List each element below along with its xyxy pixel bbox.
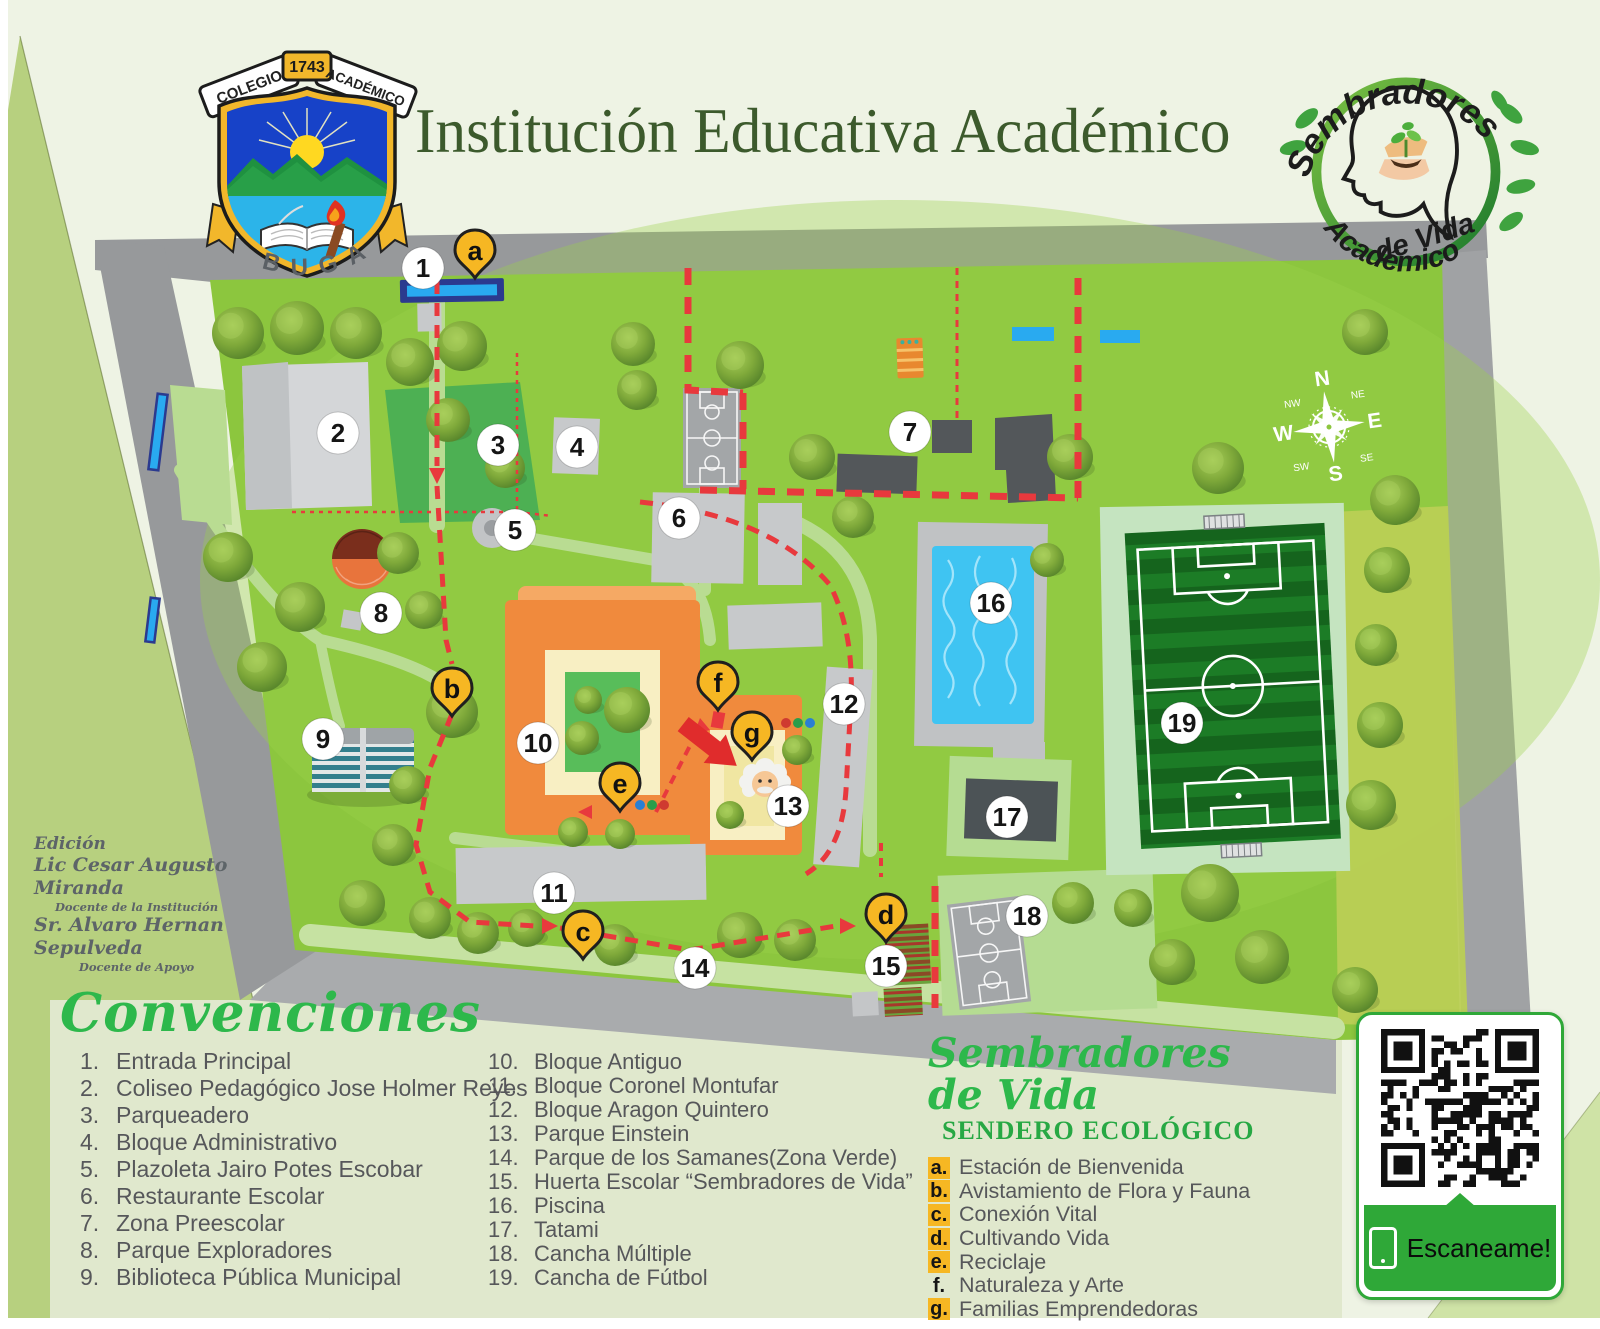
legend-label: Tatami (534, 1218, 599, 1242)
svg-text:17: 17 (993, 802, 1022, 832)
svg-text:15: 15 (872, 951, 901, 981)
sendero-title: Sembradores de Vida (928, 1032, 1268, 1116)
sendero-item-a: a.Estación de Bienvenida (928, 1156, 1268, 1180)
qr-code (1381, 1029, 1539, 1187)
svg-text:4: 4 (570, 432, 585, 462)
legend-item-5: 14.Parque de los Samanes(Zona Verde) (488, 1146, 913, 1170)
school-crest: COLEGIO ACADÉMICO 1743 (183, 24, 431, 290)
sendero-letter: c. (928, 1204, 950, 1226)
seal-hands-plant (1379, 121, 1430, 180)
compass-N: N (1313, 367, 1331, 392)
legend-number: 4. (80, 1129, 116, 1156)
sendero-label: Cultivando Vida (959, 1226, 1109, 1251)
legend-number: 14. (488, 1146, 534, 1170)
map-marker-12: 12 (823, 683, 865, 725)
legend-item-2: 2.Coliseo Pedagógico Jose Holmer Reyes (80, 1075, 528, 1102)
svg-text:6: 6 (672, 503, 686, 533)
map-marker-8: 8 (360, 592, 402, 634)
legend-item-5: 5.Plazoleta Jairo Potes Escobar (80, 1156, 528, 1183)
map-marker-10: 10 (517, 722, 559, 764)
svg-text:13: 13 (774, 791, 803, 821)
preescolar-building (932, 420, 972, 453)
legend-number: 12. (488, 1098, 534, 1122)
legend-label: Cancha Múltiple (534, 1242, 692, 1266)
sendero-item-d: d.Cultivando Vida (928, 1227, 1268, 1251)
sendero-item-f: f.Naturaleza y Arte (928, 1274, 1268, 1298)
legend-item-3: 3.Parqueadero (80, 1102, 528, 1129)
legend-item-6: 6.Restaurante Escolar (80, 1183, 528, 1210)
svg-text:9: 9 (316, 724, 330, 754)
legend-item-6: 15.Huerta Escolar “Sembradores de Vida” (488, 1170, 913, 1194)
map-marker-9: 9 (302, 718, 344, 760)
sendero-letter: e. (928, 1251, 950, 1273)
compass-SE: SE (1359, 452, 1374, 465)
map-marker-5: 5 (494, 509, 536, 551)
legend-label: Parque Exploradores (116, 1237, 332, 1264)
legend-title: Convenciones (60, 982, 481, 1044)
legend-label: Bloque Antiguo (534, 1050, 682, 1074)
svg-text:14: 14 (681, 953, 710, 983)
legend-number: 10. (488, 1050, 534, 1074)
legend-item-3: 12.Bloque Aragon Quintero (488, 1098, 913, 1122)
building-11 (456, 844, 707, 904)
sendero-item-b: b.Avistamiento de Flora y Fauna (928, 1180, 1268, 1204)
legend-number: 11. (488, 1074, 534, 1098)
compass-SW: SW (1293, 461, 1311, 474)
preescolar-basketball-court (683, 388, 741, 488)
legend-label: Bloque Coronel Montufar (534, 1074, 779, 1098)
legend-number: 9. (80, 1264, 116, 1291)
legend-number: 6. (80, 1183, 116, 1210)
map-marker-4: 4 (556, 426, 598, 468)
map-marker-7: 7 (889, 411, 931, 453)
sendero-ecologico-block: Sembradores de Vida SENDERO ECOLÓGICO a.… (928, 1032, 1268, 1321)
legend-item-1: 1.Entrada Principal (80, 1048, 528, 1075)
compass-NE: NE (1350, 389, 1366, 402)
map-marker-11: 11 (533, 872, 575, 914)
legend-label: Biblioteca Pública Municipal (116, 1264, 401, 1291)
playground-equipment (896, 338, 923, 379)
legend-label: Parque Einstein (534, 1122, 689, 1146)
legend-label: Zona Preescolar (116, 1210, 285, 1237)
blue-canopy (1100, 330, 1140, 343)
legend-label: Piscina (534, 1194, 605, 1218)
campus-map-poster: { "page": {"background": "#eef3e4"}, "he… (0, 0, 1600, 1329)
legend-label: Restaurante Escolar (116, 1183, 324, 1210)
sendero-label: Naturaleza y Arte (959, 1273, 1124, 1298)
legend-label: Parque de los Samanes(Zona Verde) (534, 1146, 897, 1170)
sendero-letter: f. (928, 1275, 950, 1297)
edition-line-1: Lic Cesar Augusto Miranda (34, 854, 274, 900)
legend-number: 19. (488, 1266, 534, 1290)
sendero-letter: d. (928, 1228, 950, 1250)
sendero-label: Familias Emprendedoras (959, 1297, 1198, 1322)
legend-number: 5. (80, 1156, 116, 1183)
legend-label: Coliseo Pedagógico Jose Holmer Reyes (116, 1075, 528, 1102)
sendero-label: Avistamiento de Flora y Fauna (959, 1179, 1250, 1204)
svg-text:7: 7 (903, 417, 917, 447)
legend-label: Huerta Escolar “Sembradores de Vida” (534, 1170, 913, 1194)
svg-text:8: 8 (374, 598, 388, 628)
edition-credits: Edición Lic Cesar Augusto MirandaDocente… (34, 834, 274, 974)
legend-number: 2. (80, 1075, 116, 1102)
sendero-item-c: c.Conexión Vital (928, 1203, 1268, 1227)
svg-text:c: c (575, 917, 590, 947)
legend-number: 18. (488, 1242, 534, 1266)
legend-item-4: 4.Bloque Administrativo (80, 1129, 528, 1156)
legend-label: Parqueadero (116, 1102, 249, 1129)
legend-label: Bloque Aragon Quintero (534, 1098, 769, 1122)
legend-label: Cancha de Fútbol (534, 1266, 708, 1290)
legend-number: 7. (80, 1210, 116, 1237)
map-marker-13: 13 (767, 785, 809, 827)
svg-text:18: 18 (1013, 901, 1042, 931)
svg-text:f: f (714, 668, 724, 698)
svg-text:e: e (612, 769, 627, 799)
svg-text:3: 3 (491, 430, 505, 460)
edition-line-2: Docente de la Institución (34, 900, 239, 914)
qr-card: Escaneame! (1356, 1012, 1564, 1300)
legend-item-8: 8.Parque Exploradores (80, 1237, 528, 1264)
legend-item-8: 17.Tatami (488, 1218, 913, 1242)
legend-column-1: 1.Entrada Principal2.Coliseo Pedagógico … (80, 1048, 528, 1291)
map-marker-2: 2 (317, 412, 359, 454)
legend-number: 16. (488, 1194, 534, 1218)
legend-number: 15. (488, 1170, 534, 1194)
legend-label: Entrada Principal (116, 1048, 291, 1075)
bloque-antiguo-10 (505, 586, 700, 835)
svg-text:d: d (878, 900, 895, 930)
legend-item-9: 9.Biblioteca Pública Municipal (80, 1264, 528, 1291)
map-marker-14: 14 (674, 947, 716, 989)
svg-text:11: 11 (540, 878, 568, 908)
legend-item-9: 18.Cancha Múltiple (488, 1242, 913, 1266)
goal (1221, 843, 1262, 858)
edition-heading: Edición (34, 834, 274, 854)
svg-text:a: a (467, 236, 483, 266)
compass-W: W (1272, 421, 1295, 447)
legend-item-2: 11.Bloque Coronel Montufar (488, 1074, 913, 1098)
sendero-label: Estación de Bienvenida (959, 1155, 1184, 1180)
map-marker-16: 16 (970, 582, 1012, 624)
qr-label: Escaneame! (1407, 1233, 1552, 1264)
goal (1204, 514, 1245, 529)
svg-text:10: 10 (524, 728, 553, 758)
map-marker-15: 15 (865, 945, 907, 987)
sendero-item-g: g.Familias Emprendedoras (928, 1298, 1268, 1322)
sendero-letter: g. (928, 1298, 950, 1320)
cancha-futbol-19 (1100, 503, 1350, 875)
preescolar-building (836, 454, 917, 495)
blue-canopy (1012, 327, 1054, 341)
map-marker-6: 6 (658, 497, 700, 539)
sendero-letter: b. (928, 1180, 950, 1202)
map-marker-17: 17 (986, 796, 1028, 838)
legend-label: Plazoleta Jairo Potes Escobar (116, 1156, 423, 1183)
legend-item-10: 19.Cancha de Fútbol (488, 1266, 913, 1290)
legend-item-7: 7.Zona Preescolar (80, 1210, 528, 1237)
sendero-items: a.Estación de Bienvenidab.Avistamiento d… (928, 1156, 1268, 1321)
sendero-subtitle: SENDERO ECOLÓGICO (942, 1116, 1268, 1146)
svg-text:b: b (444, 674, 461, 704)
map-marker-3: 3 (477, 424, 519, 466)
legend-item-1: 10.Bloque Antiguo (488, 1050, 913, 1074)
cancha-multiple-18 (938, 868, 1158, 1015)
legend-number: 13. (488, 1122, 534, 1146)
svg-text:2: 2 (331, 418, 345, 448)
svg-text:g: g (744, 718, 761, 748)
sendero-item-e: e.Reciclaje (928, 1250, 1268, 1274)
legend-number: 8. (80, 1237, 116, 1264)
page-title: Institución Educativa Académico (415, 94, 1229, 168)
sendero-label: Conexión Vital (959, 1202, 1097, 1227)
legend-number: 17. (488, 1218, 534, 1242)
svg-text:19: 19 (1168, 708, 1197, 738)
map-marker-19: 19 (1161, 702, 1203, 744)
legend-column-2: 10.Bloque Antiguo11.Bloque Coronel Montu… (488, 1050, 913, 1290)
sembradores-seal: Sembradores de Vida Académico (1260, 8, 1552, 326)
ribbon-year-text: 1743 (289, 59, 325, 76)
legend-label: Bloque Administrativo (116, 1129, 337, 1156)
edition-line-4: Docente de Apoyo (34, 960, 239, 974)
edition-line-3: Sr. Alvaro Hernan Sepulveda (34, 914, 274, 960)
svg-text:5: 5 (508, 515, 522, 545)
legend-item-4: 13.Parque Einstein (488, 1122, 913, 1146)
svg-text:12: 12 (830, 689, 859, 719)
svg-text:16: 16 (977, 588, 1006, 618)
qr-footer: Escaneame! (1364, 1205, 1556, 1291)
map-marker-18: 18 (1006, 895, 1048, 937)
phone-icon (1369, 1227, 1397, 1269)
legend-number: 3. (80, 1102, 116, 1129)
legend-number: 1. (80, 1048, 116, 1075)
sendero-letter: a. (928, 1157, 950, 1179)
sendero-label: Reciclaje (959, 1250, 1046, 1275)
legend-item-7: 16.Piscina (488, 1194, 913, 1218)
